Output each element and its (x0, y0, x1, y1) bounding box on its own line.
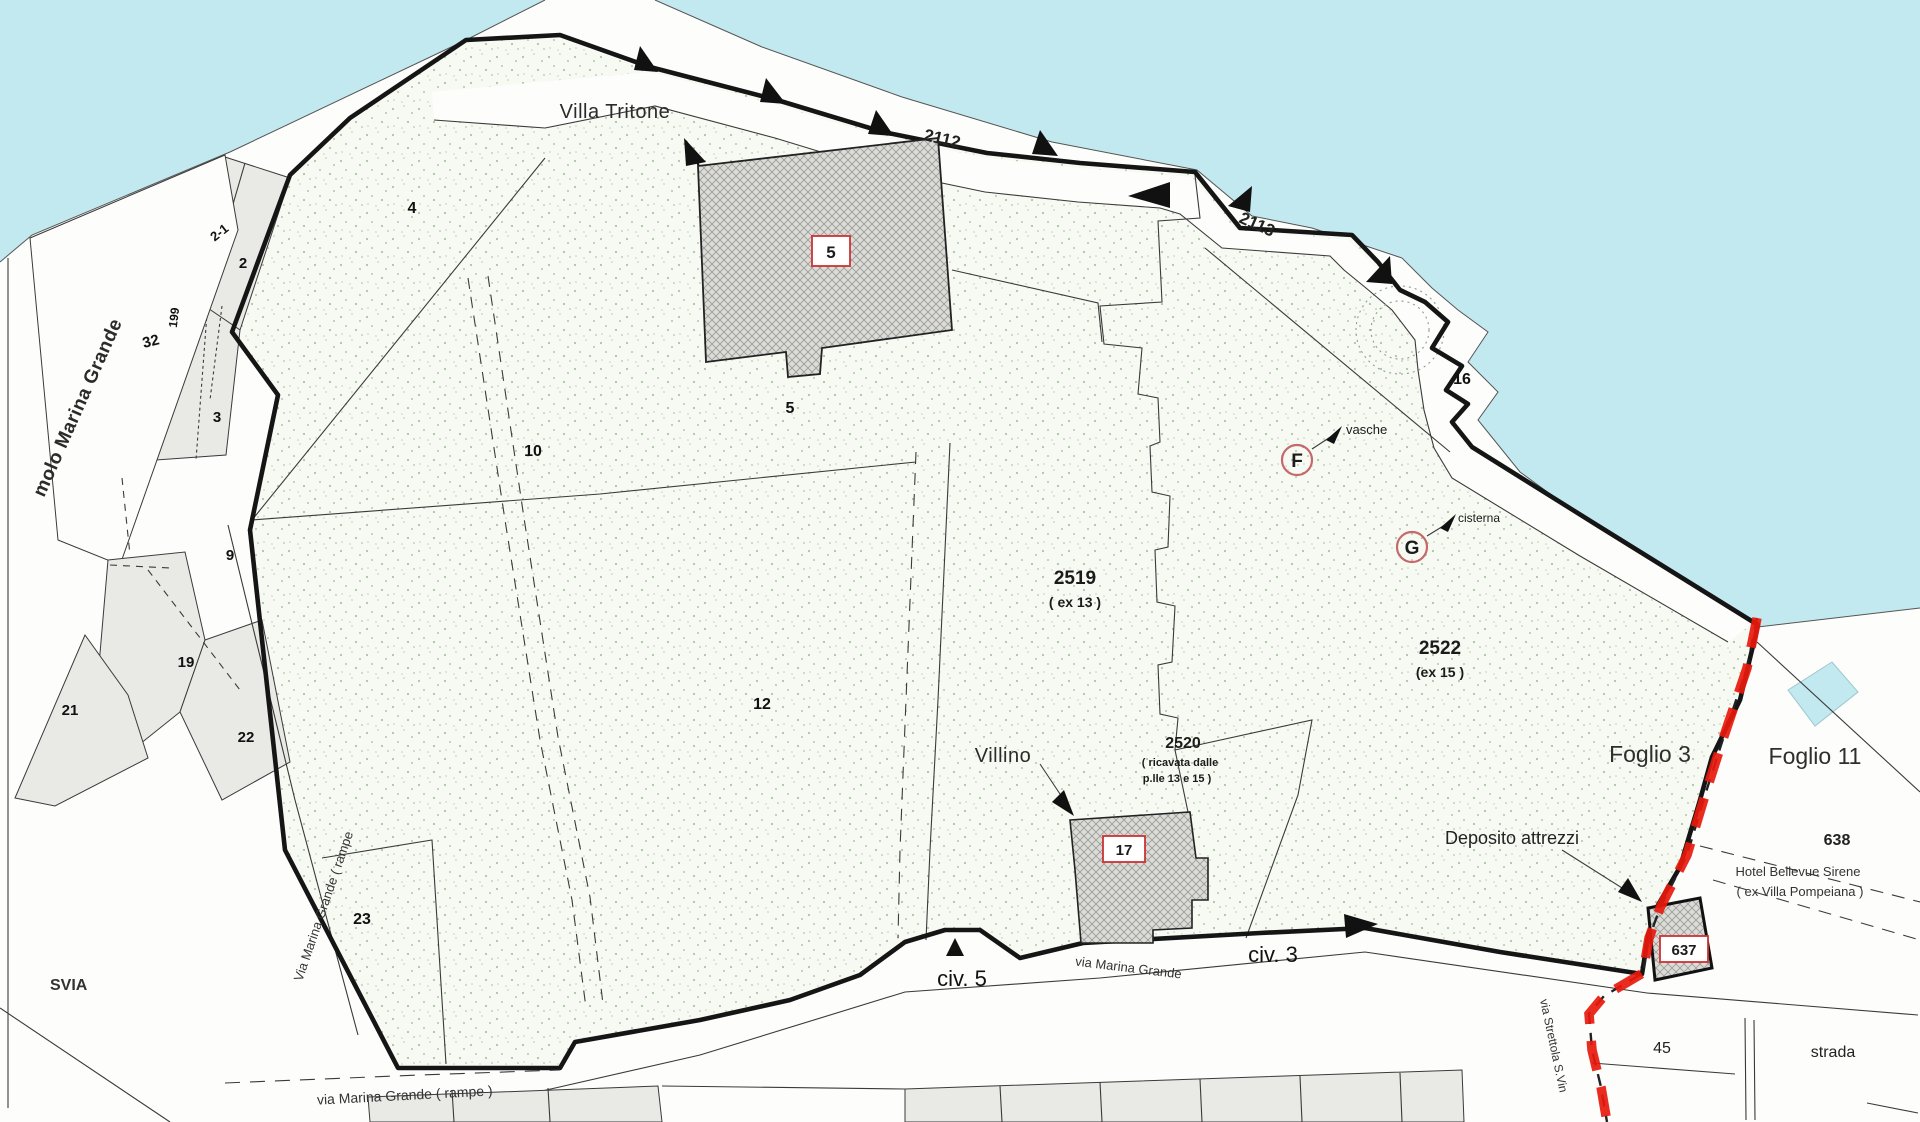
letter-f: F (1291, 451, 1303, 472)
label-parcel-21: 21 (62, 702, 79, 719)
label-parcel-2519-sub: ( ex 13 ) (1049, 594, 1101, 610)
label-parcel-5: 5 (786, 400, 795, 417)
label-parcel-16: 16 (1453, 371, 1471, 388)
label-villino: Villino (975, 745, 1032, 767)
label-civ-5: civ. 5 (937, 966, 987, 991)
label-parcel-9: 9 (226, 547, 234, 564)
label-parcel-45: 45 (1653, 1040, 1671, 1057)
label-svia: SVIA (50, 977, 88, 994)
label-parcel-2522-sub: (ex 15 ) (1416, 664, 1464, 680)
label-parcel-10: 10 (524, 443, 542, 460)
label-deposito-attrezzi: Deposito attrezzi (1445, 828, 1579, 848)
label-strada: strada (1811, 1044, 1856, 1061)
label-civ-3: civ. 3 (1248, 942, 1298, 967)
label-parcel-12: 12 (753, 696, 771, 713)
label-parcel-199: 199 (166, 306, 182, 328)
cadastral-map: F G 5 17 637 Villa Tritone molo Marina G… (0, 0, 1920, 1122)
label-vasche: vasche (1346, 422, 1387, 437)
label-parcel-19: 19 (178, 654, 195, 671)
building-17-villino (1070, 812, 1208, 943)
building-637-label: 637 (1671, 942, 1696, 959)
building-17-label: 17 (1116, 842, 1133, 859)
label-parcel-638: 638 (1824, 832, 1851, 849)
label-parcel-2520-sub2: p.lle 13 e 15 ) (1143, 773, 1212, 785)
label-parcel-2520-sub1: ( ricavata dalle (1142, 757, 1218, 769)
label-hotel-line2: ( ex Villa Pompeiana ) (1737, 884, 1864, 899)
label-foglio-3: Foglio 3 (1609, 741, 1691, 767)
label-parcel-22: 22 (238, 729, 255, 746)
label-cisterna: cisterna (1458, 511, 1500, 525)
building-5-label: 5 (826, 243, 835, 262)
label-hotel-line1: Hotel Bellevue Sirene (1735, 864, 1860, 879)
label-parcel-2520: 2520 (1165, 735, 1201, 752)
label-parcel-2522: 2522 (1419, 638, 1461, 659)
label-villa-tritone: Villa Tritone (560, 101, 671, 123)
label-parcel-4: 4 (408, 200, 417, 217)
label-parcel-3: 3 (213, 409, 221, 426)
label-foglio-11: Foglio 11 (1769, 743, 1862, 769)
label-parcel-2: 2 (239, 255, 247, 272)
label-parcel-2519: 2519 (1054, 568, 1096, 589)
label-parcel-23: 23 (353, 911, 371, 928)
letter-g: G (1405, 538, 1420, 559)
